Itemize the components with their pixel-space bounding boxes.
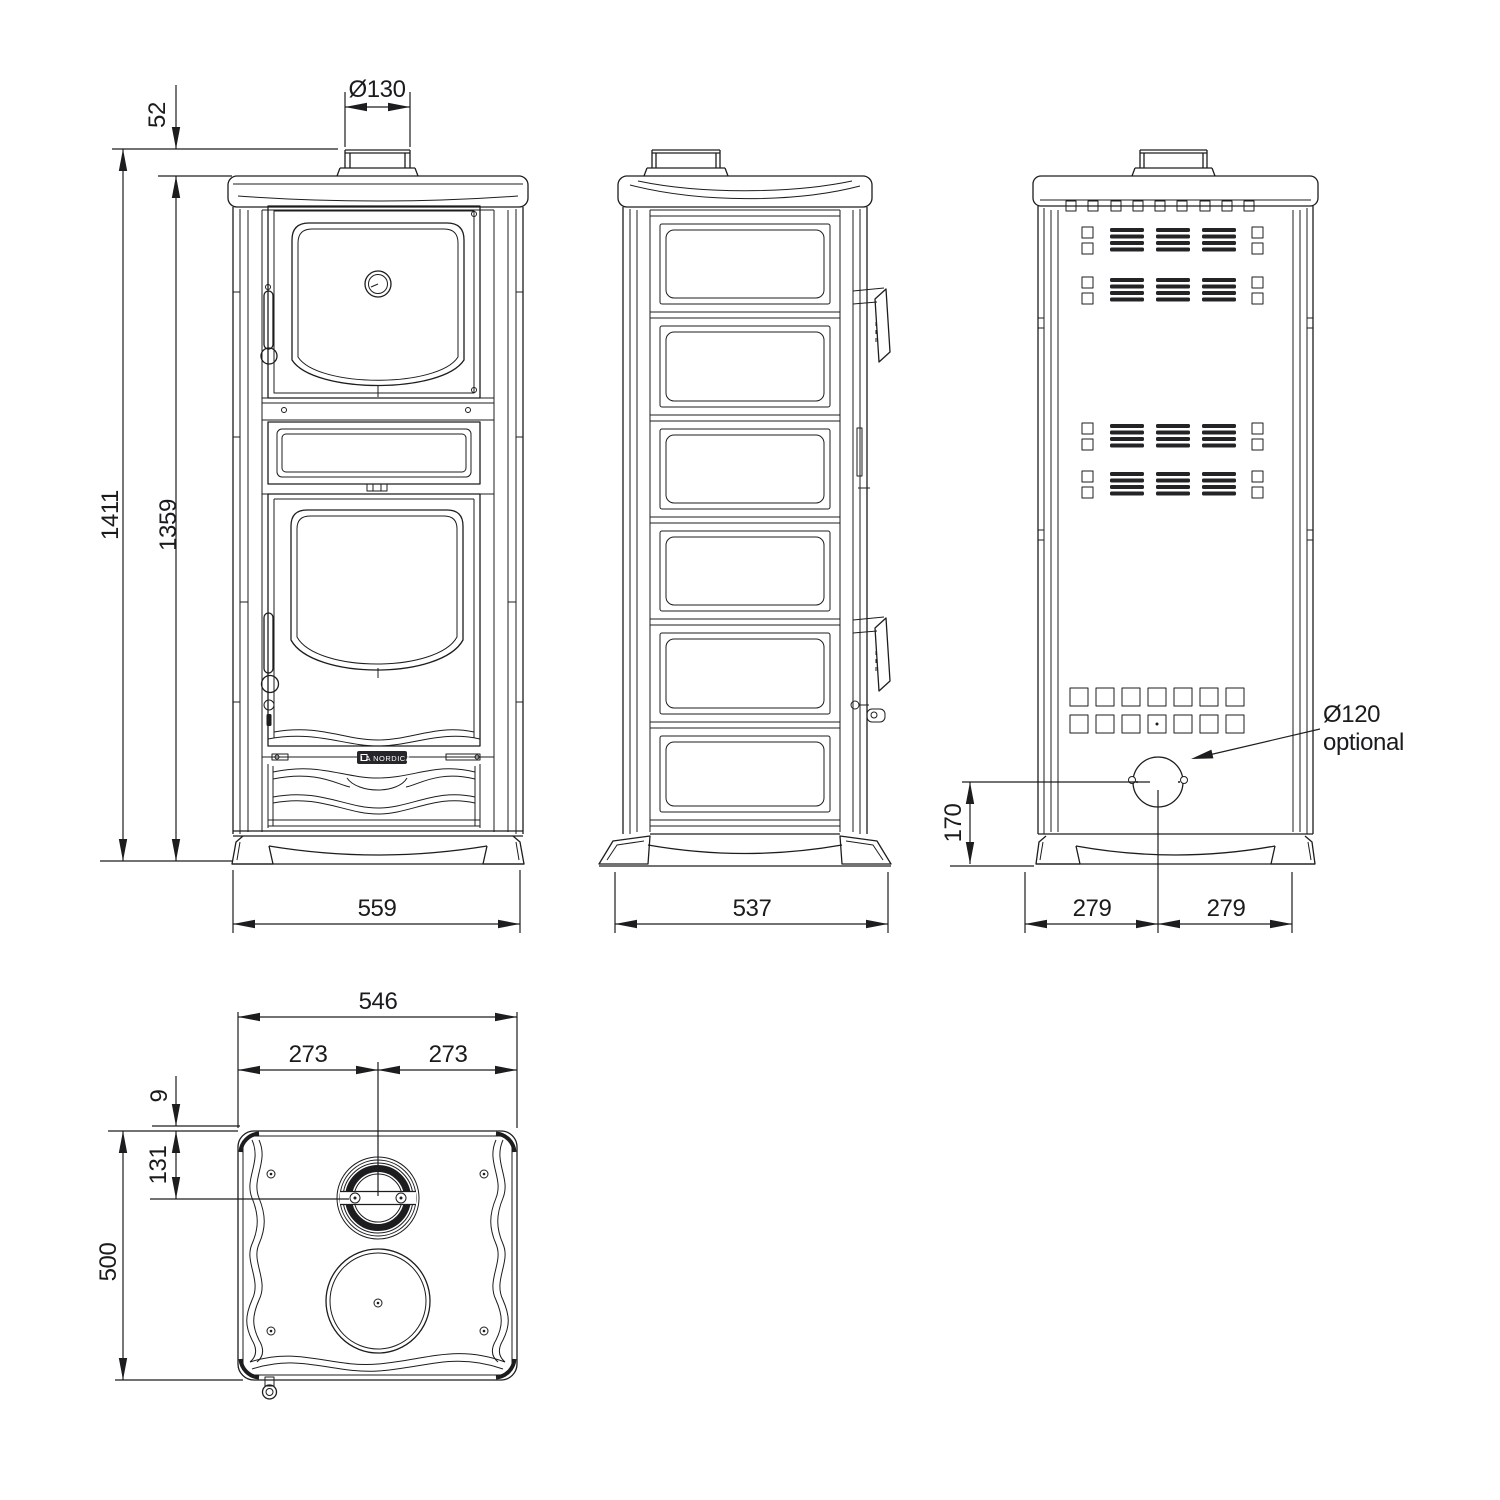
- dim-top-half-left: 273: [289, 1041, 328, 1068]
- dim-body-height: 1359: [155, 499, 182, 551]
- dim-top-depth: 500: [95, 1243, 122, 1282]
- dim-top-flue-offset: 131: [145, 1146, 172, 1185]
- dim-rear-flue-note: optional: [1323, 729, 1404, 756]
- dim-top-edge-offset: 9: [146, 1089, 173, 1102]
- badge-label: LA NORDICA: [361, 754, 411, 763]
- dim-top-half-right: 273: [429, 1041, 468, 1068]
- dim-rear-half-left: 279: [1073, 895, 1112, 922]
- brand-badge: LA NORDICA: [357, 751, 411, 764]
- dim-rear-flue-height: 170: [940, 804, 967, 843]
- dim-rear-half-right: 279: [1207, 895, 1246, 922]
- dim-side-depth: 537: [733, 895, 772, 922]
- dim-front-width: 559: [358, 895, 397, 922]
- dim-top-width: 546: [359, 988, 398, 1015]
- dim-flue-collar-height: 52: [144, 102, 171, 128]
- dim-flue-diameter: Ø130: [348, 76, 405, 103]
- dim-rear-flue-diameter: Ø120: [1323, 701, 1380, 728]
- dim-total-height: 1411: [97, 490, 124, 540]
- technical-drawing-page: LA NORDICA Ø130 52: [0, 0, 1500, 1500]
- stove-technical-drawing: LA NORDICA Ø130 52: [0, 0, 1500, 1500]
- background: [0, 0, 1500, 1500]
- oven-thermometer: [365, 271, 391, 297]
